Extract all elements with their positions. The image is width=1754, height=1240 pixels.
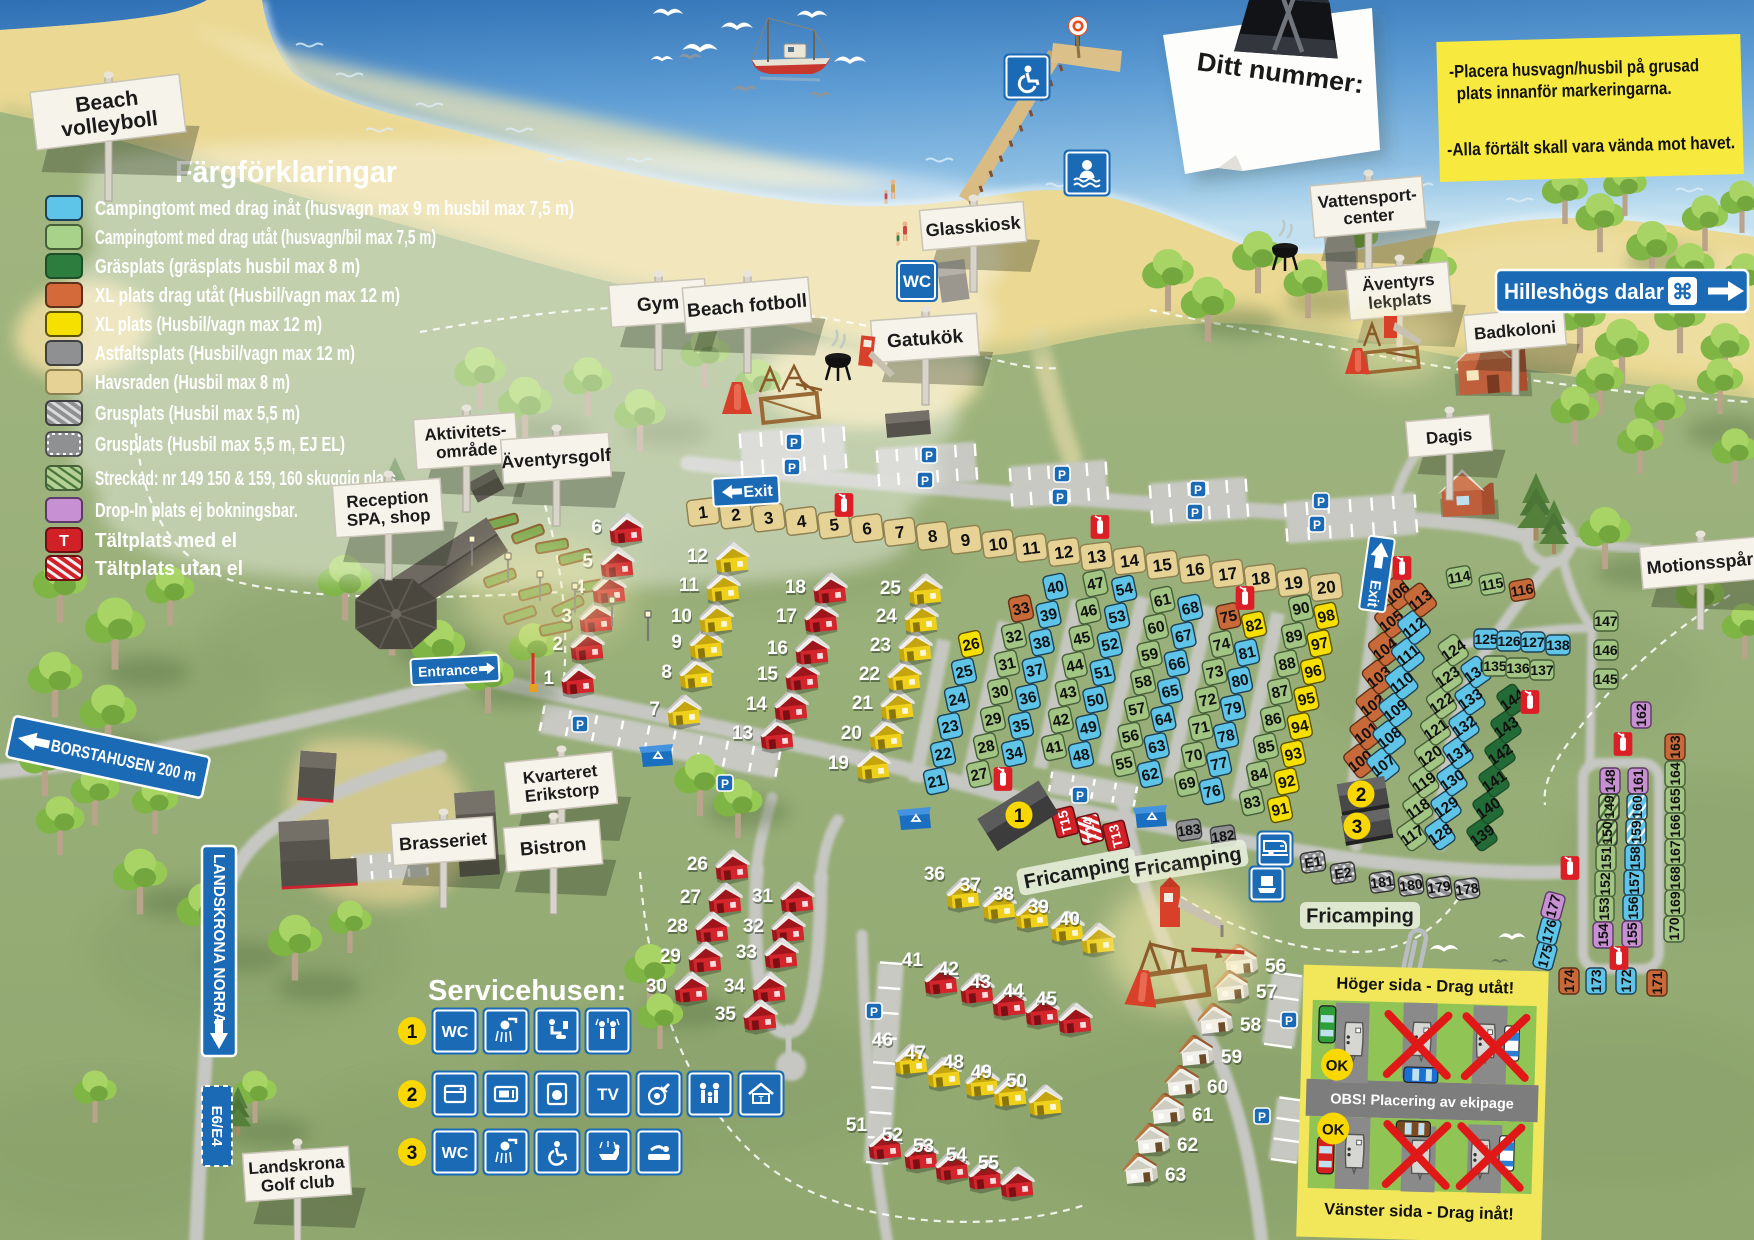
svg-text:Campingtomt med drag inåt (hus: Campingtomt med drag inåt (husvagn max 9… (95, 197, 574, 220)
svg-text:1: 1 (543, 668, 554, 689)
svg-text:Campingtomt med drag utåt (hus: Campingtomt med drag utåt (husvagn/bil m… (95, 226, 436, 249)
svg-text:35: 35 (715, 1004, 737, 1025)
svg-text:148: 148 (1602, 769, 1618, 793)
svg-text:32: 32 (743, 916, 764, 937)
svg-text:28: 28 (667, 916, 688, 937)
svg-text:167: 167 (1667, 840, 1683, 864)
svg-text:Fricamping: Fricamping (1306, 906, 1414, 928)
svg-text:174: 174 (1561, 969, 1577, 993)
svg-text:42: 42 (1051, 711, 1071, 731)
svg-text:155: 155 (1624, 922, 1640, 946)
svg-text:15: 15 (1152, 555, 1173, 576)
svg-text:60: 60 (1146, 618, 1166, 638)
svg-text:163: 163 (1667, 735, 1683, 759)
svg-text:172: 172 (1618, 969, 1634, 993)
svg-text:T: T (759, 1095, 764, 1104)
svg-text:160: 160 (1629, 795, 1645, 819)
svg-text:52: 52 (1100, 635, 1120, 655)
svg-text:22: 22 (859, 664, 880, 685)
svg-text:40: 40 (1059, 909, 1080, 930)
svg-text:48: 48 (943, 1052, 964, 1073)
svg-text:47: 47 (905, 1043, 926, 1064)
svg-text:Exit: Exit (743, 483, 774, 502)
svg-text:169: 169 (1667, 891, 1683, 915)
svg-text:67: 67 (1174, 626, 1194, 646)
svg-text:82: 82 (1244, 616, 1264, 636)
svg-text:162: 162 (1633, 703, 1649, 727)
svg-text:135: 135 (1483, 658, 1507, 674)
svg-text:13: 13 (1086, 546, 1107, 567)
svg-text:62: 62 (1140, 765, 1160, 785)
svg-text:164: 164 (1667, 762, 1683, 786)
svg-text:16: 16 (1185, 559, 1206, 580)
svg-text:161: 161 (1630, 769, 1646, 793)
svg-text:50: 50 (1085, 691, 1105, 711)
svg-text:E6/E4: E6/E4 (208, 1106, 225, 1148)
svg-text:Grusplats (Husbil max 5,5 m, E: Grusplats (Husbil max 5,5 m, EJ EL) (95, 434, 345, 456)
svg-text:137: 137 (1530, 662, 1554, 678)
svg-text:WC: WC (903, 272, 931, 291)
svg-text:125: 125 (1474, 631, 1498, 647)
svg-text:9: 9 (671, 632, 682, 653)
svg-text:46: 46 (872, 1030, 893, 1051)
svg-text:LANDSKRONA NORRA: LANDSKRONA NORRA (210, 854, 227, 1024)
svg-text:178: 178 (1454, 879, 1480, 898)
svg-text:60: 60 (1207, 1077, 1228, 1098)
svg-text:Tältplats med el: Tältplats med el (95, 530, 237, 552)
svg-text:36: 36 (924, 864, 945, 885)
svg-text:44: 44 (1003, 981, 1025, 1002)
svg-text:150: 150 (1599, 821, 1615, 845)
svg-text:183: 183 (1176, 820, 1202, 839)
svg-text:10: 10 (671, 606, 692, 627)
svg-text:Servicehusen:: Servicehusen: (428, 975, 626, 1007)
svg-text:30: 30 (646, 976, 667, 997)
svg-text:154: 154 (1595, 923, 1611, 947)
svg-text:54: 54 (946, 1145, 968, 1166)
svg-text:11: 11 (1021, 538, 1041, 559)
svg-text:138: 138 (1546, 637, 1570, 653)
svg-text:55: 55 (978, 1153, 1000, 1174)
svg-text:25: 25 (880, 578, 902, 599)
svg-text:XL plats drag utåt (Husbil/vag: XL plats drag utåt (Husbil/vagn max 12 m… (95, 284, 400, 307)
svg-text:173: 173 (1588, 969, 1604, 993)
svg-text:Grusplats (Husbil max 5,5 m): Grusplats (Husbil max 5,5 m) (95, 403, 300, 425)
svg-text:Färgförklaringar: Färgförklaringar (175, 154, 397, 189)
svg-text:58: 58 (1240, 1015, 1261, 1036)
svg-text:51: 51 (846, 1115, 868, 1136)
svg-text:33: 33 (736, 942, 757, 963)
svg-text:53: 53 (913, 1136, 934, 1157)
svg-text:97: 97 (1310, 634, 1330, 654)
svg-text:31: 31 (752, 886, 774, 907)
svg-text:34: 34 (724, 976, 746, 997)
svg-text:6: 6 (591, 517, 602, 538)
svg-text:57: 57 (1127, 700, 1147, 720)
svg-text:38: 38 (993, 884, 1014, 905)
svg-text:Tältplats utan el: Tältplats utan el (95, 558, 243, 580)
svg-text:12: 12 (1053, 542, 1074, 563)
svg-text:Havsraden (Husbil max 8 m): Havsraden (Husbil max 8 m) (95, 372, 290, 394)
svg-text:43: 43 (970, 972, 991, 993)
svg-text:1: 1 (407, 1022, 418, 1043)
svg-text:Hilleshögs dalar: Hilleshögs dalar (1504, 279, 1664, 304)
svg-text:90: 90 (1291, 599, 1311, 619)
svg-text:49: 49 (971, 1062, 992, 1083)
svg-text:29: 29 (660, 946, 681, 967)
svg-text:TV: TV (597, 1085, 619, 1104)
svg-text:179: 179 (1426, 877, 1452, 896)
svg-text:62: 62 (1177, 1135, 1198, 1156)
svg-text:E2: E2 (1333, 864, 1352, 882)
svg-text:20: 20 (841, 723, 862, 744)
svg-text:XL plats (Husbil/vagn max 12 m: XL plats (Husbil/vagn max 12 m) (95, 314, 322, 336)
svg-text:166: 166 (1667, 814, 1683, 838)
svg-text:Dagis: Dagis (1425, 425, 1473, 448)
svg-text:Entrance: Entrance (418, 661, 479, 680)
svg-text:171: 171 (1649, 971, 1665, 995)
svg-text:165: 165 (1667, 788, 1683, 812)
svg-text:27: 27 (680, 887, 701, 908)
svg-text:136: 136 (1506, 660, 1530, 676)
svg-text:3: 3 (1352, 817, 1363, 838)
svg-text:26: 26 (687, 854, 708, 875)
svg-text:151: 151 (1598, 846, 1614, 870)
svg-text:61: 61 (1192, 1105, 1214, 1126)
svg-text:80: 80 (1230, 671, 1250, 691)
svg-text:42: 42 (938, 959, 959, 980)
svg-text:10: 10 (988, 534, 1009, 555)
svg-text:147: 147 (1594, 613, 1618, 629)
svg-text:152: 152 (1597, 872, 1613, 896)
svg-text:158: 158 (1627, 846, 1643, 870)
svg-text:146: 146 (1594, 642, 1618, 658)
svg-text:180: 180 (1398, 875, 1424, 894)
svg-text:15: 15 (757, 664, 779, 685)
svg-text:7: 7 (649, 699, 660, 720)
svg-text:Gräsplats (gräsplats husbil ma: Gräsplats (gräsplats husbil max 8 m) (95, 256, 360, 278)
svg-text:1: 1 (1014, 806, 1025, 827)
svg-text:39: 39 (1028, 897, 1049, 918)
svg-text:Drop-In plats ej bokningsbar.: Drop-In plats ej bokningsbar. (95, 500, 298, 522)
svg-text:153: 153 (1596, 897, 1612, 921)
svg-text:Astfaltsplats (Husbil/vagn max: Astfaltsplats (Husbil/vagn max 12 m) (95, 343, 355, 365)
svg-text:2: 2 (1356, 785, 1367, 806)
svg-text:⌘: ⌘ (1672, 281, 1693, 304)
svg-text:72: 72 (1198, 691, 1218, 711)
svg-text:19: 19 (828, 753, 849, 774)
svg-text:11: 11 (679, 575, 700, 596)
svg-text:Gym: Gym (636, 292, 680, 316)
svg-text:22: 22 (933, 745, 953, 765)
svg-text:145: 145 (1594, 671, 1618, 687)
svg-text:OK: OK (1326, 1057, 1349, 1075)
svg-text:156: 156 (1625, 896, 1641, 920)
svg-text:59: 59 (1221, 1047, 1242, 1068)
svg-text:WC: WC (442, 1024, 469, 1041)
svg-text:127: 127 (1521, 634, 1545, 650)
svg-text:50: 50 (1006, 1071, 1027, 1092)
svg-text:14: 14 (746, 694, 768, 715)
svg-text:20: 20 (1316, 577, 1337, 598)
svg-text:18: 18 (1250, 568, 1271, 589)
svg-text:92: 92 (1277, 772, 1297, 792)
svg-text:77: 77 (1209, 754, 1229, 774)
svg-text:32: 32 (1004, 627, 1024, 647)
svg-text:40: 40 (1045, 578, 1065, 598)
svg-text:27: 27 (969, 765, 989, 785)
svg-text:18: 18 (785, 577, 806, 598)
svg-text:17: 17 (776, 606, 797, 627)
svg-text:52: 52 (882, 1125, 903, 1146)
svg-text:157: 157 (1626, 871, 1642, 895)
svg-text:12: 12 (687, 546, 708, 567)
svg-text:45: 45 (1036, 989, 1058, 1010)
svg-text:13: 13 (732, 723, 753, 744)
svg-text:14: 14 (1119, 550, 1141, 571)
svg-text:168: 168 (1667, 866, 1683, 890)
svg-text:23: 23 (870, 635, 891, 656)
svg-text:87: 87 (1270, 682, 1290, 702)
svg-text:WC: WC (442, 1145, 469, 1162)
svg-text:T: T (59, 533, 69, 550)
svg-text:181: 181 (1369, 872, 1395, 891)
svg-text:17: 17 (1217, 564, 1238, 585)
svg-text:21: 21 (852, 693, 874, 714)
svg-text:2: 2 (407, 1085, 418, 1106)
svg-text:70: 70 (1184, 746, 1204, 766)
svg-text:57: 57 (1256, 982, 1277, 1003)
svg-text:47: 47 (1085, 574, 1105, 594)
svg-text:3: 3 (407, 1143, 418, 1164)
svg-text:37: 37 (1025, 661, 1045, 681)
svg-text:24: 24 (876, 606, 898, 627)
svg-text:159: 159 (1628, 820, 1644, 844)
svg-text:63: 63 (1165, 1165, 1186, 1186)
svg-text:OK: OK (1322, 1121, 1345, 1139)
svg-text:41: 41 (902, 950, 924, 971)
svg-text:19: 19 (1283, 573, 1304, 594)
svg-text:126: 126 (1497, 633, 1521, 649)
svg-text:170: 170 (1666, 917, 1682, 941)
svg-text:E1: E1 (1303, 853, 1322, 871)
svg-text:37: 37 (960, 875, 981, 896)
svg-text:16: 16 (767, 638, 788, 659)
svg-text:8: 8 (661, 662, 672, 683)
svg-text:56: 56 (1265, 956, 1286, 977)
svg-text:30: 30 (990, 682, 1010, 702)
svg-text:149: 149 (1601, 795, 1617, 819)
